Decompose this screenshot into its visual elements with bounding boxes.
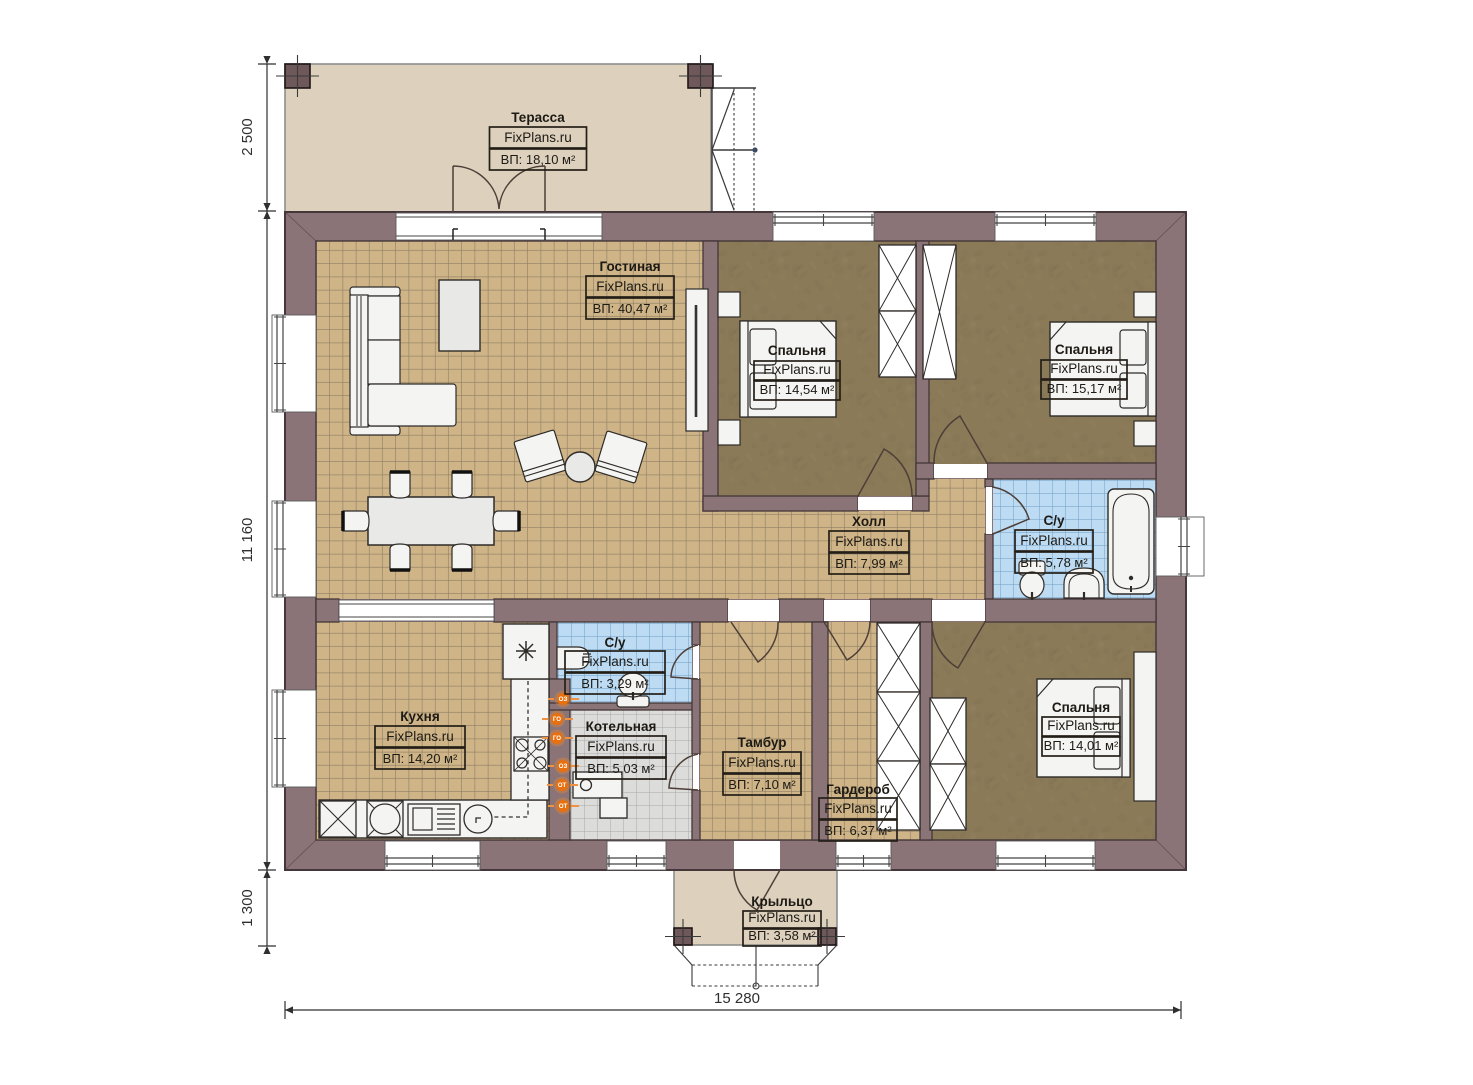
svg-text:ГО: ГО xyxy=(553,716,561,723)
svg-text:С/у: С/у xyxy=(1043,513,1065,528)
svg-text:ОЗ: ОЗ xyxy=(559,696,568,703)
svg-text:ВП: 7,10 м²: ВП: 7,10 м² xyxy=(728,777,796,792)
svg-text:ВП: 5,03 м²: ВП: 5,03 м² xyxy=(587,761,655,776)
svg-text:2 500: 2 500 xyxy=(239,118,256,156)
svg-text:Кухня: Кухня xyxy=(400,709,439,724)
svg-text:Тамбур: Тамбур xyxy=(738,735,787,750)
svg-text:ВП: 14,54 м²: ВП: 14,54 м² xyxy=(760,382,835,397)
svg-text:ВП: 6,37 м²: ВП: 6,37 м² xyxy=(824,823,892,838)
svg-text:11 160: 11 160 xyxy=(239,518,256,563)
svg-text:FixPlans.ru: FixPlans.ru xyxy=(728,755,796,770)
svg-text:ВП: 3,29 м²: ВП: 3,29 м² xyxy=(581,676,649,691)
svg-text:ВП: 15,17 м²: ВП: 15,17 м² xyxy=(1047,381,1122,396)
svg-text:ОТ: ОТ xyxy=(559,803,568,810)
svg-text:Гостиная: Гостиная xyxy=(599,259,660,274)
svg-text:FixPlans.ru: FixPlans.ru xyxy=(596,279,664,294)
svg-text:Котельная: Котельная xyxy=(586,719,657,734)
svg-text:ВП: 14,20 м²: ВП: 14,20 м² xyxy=(383,751,458,766)
svg-text:FixPlans.ru: FixPlans.ru xyxy=(835,534,903,549)
svg-text:Крыльцо: Крыльцо xyxy=(751,894,812,909)
svg-text:ВП: 14,01 м²: ВП: 14,01 м² xyxy=(1044,738,1119,753)
svg-text:С/у: С/у xyxy=(604,635,626,650)
svg-text:Спальня: Спальня xyxy=(768,343,826,358)
svg-text:ОТ: ОТ xyxy=(558,782,567,789)
svg-text:Холл: Холл xyxy=(852,514,886,529)
svg-text:Спальня: Спальня xyxy=(1055,342,1113,357)
svg-text:Спальня: Спальня xyxy=(1052,700,1110,715)
svg-text:FixPlans.ru: FixPlans.ru xyxy=(581,654,649,669)
svg-text:15 280: 15 280 xyxy=(714,990,760,1007)
svg-text:FixPlans.ru: FixPlans.ru xyxy=(386,729,454,744)
svg-text:1 300: 1 300 xyxy=(239,889,256,927)
svg-text:FixPlans.ru: FixPlans.ru xyxy=(1020,533,1088,548)
svg-text:FixPlans.ru: FixPlans.ru xyxy=(1050,361,1118,376)
svg-text:ОЗ: ОЗ xyxy=(559,763,568,770)
svg-text:FixPlans.ru: FixPlans.ru xyxy=(748,910,816,925)
svg-text:FixPlans.ru: FixPlans.ru xyxy=(763,362,831,377)
svg-text:FixPlans.ru: FixPlans.ru xyxy=(824,801,892,816)
svg-text:ВП: 5,78 м²: ВП: 5,78 м² xyxy=(1020,555,1088,570)
svg-text:Гардероб: Гардероб xyxy=(826,782,890,797)
svg-text:ВП: 18,10 м²: ВП: 18,10 м² xyxy=(501,152,576,167)
svg-text:FixPlans.ru: FixPlans.ru xyxy=(1047,718,1115,733)
svg-text:ВП: 3,58 м²: ВП: 3,58 м² xyxy=(748,928,816,943)
svg-text:ВП: 7,99 м²: ВП: 7,99 м² xyxy=(835,556,903,571)
svg-text:FixPlans.ru: FixPlans.ru xyxy=(504,130,572,145)
svg-text:FixPlans.ru: FixPlans.ru xyxy=(587,739,655,754)
svg-text:ГО: ГО xyxy=(553,735,561,742)
svg-text:ВП: 40,47 м²: ВП: 40,47 м² xyxy=(593,301,668,316)
svg-text:Терасса: Терасса xyxy=(511,110,565,125)
